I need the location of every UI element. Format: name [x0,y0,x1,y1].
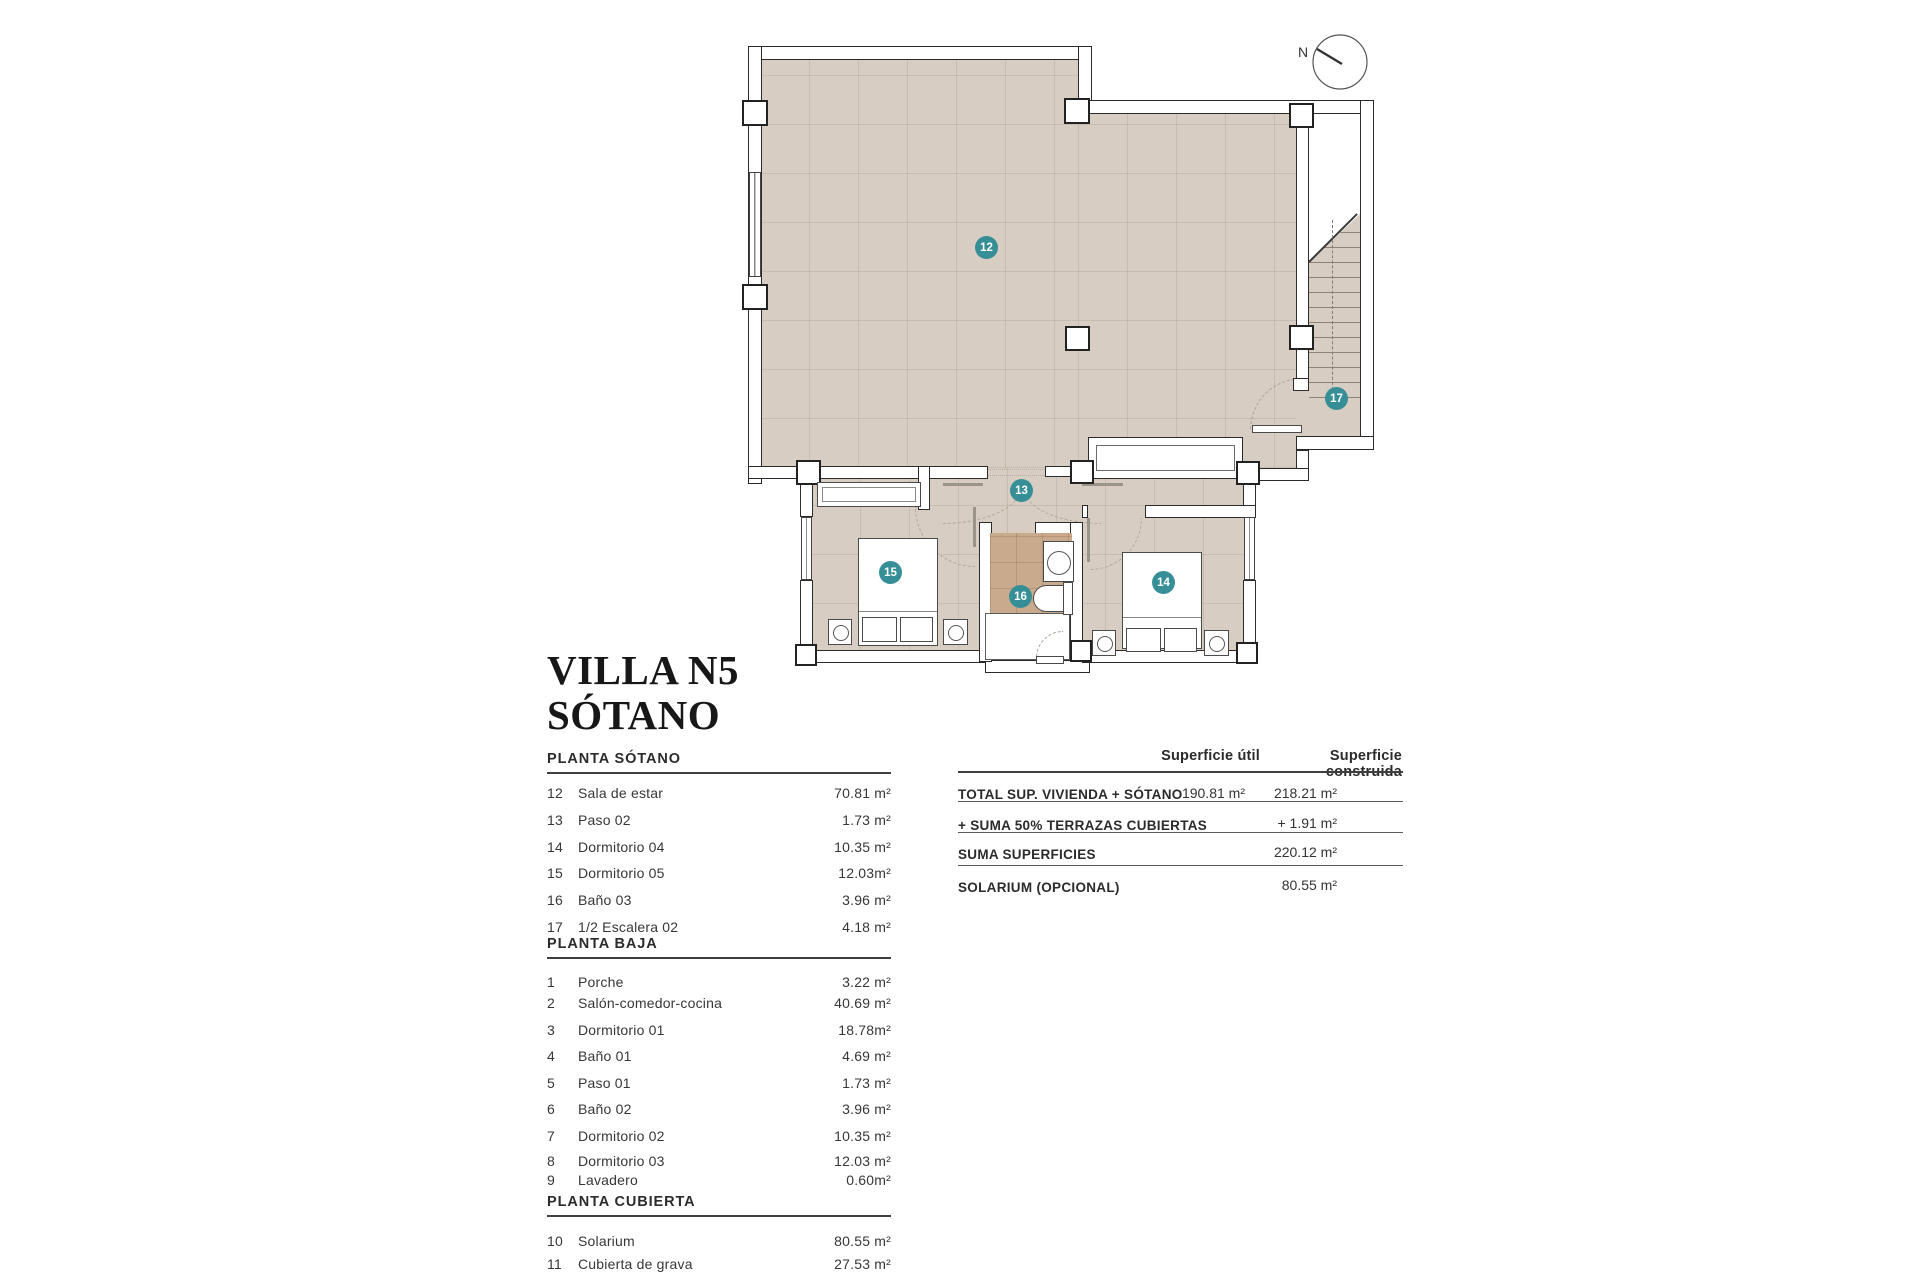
row-area: 18.78m² [838,1022,891,1038]
row-area: 1.73 m² [842,812,891,828]
stair-tread [1309,352,1360,353]
summary-rule [958,832,1403,833]
row-number: 4 [547,1048,578,1064]
row-number: 10 [547,1233,578,1249]
section-header: PLANTA SÓTANO [547,751,681,767]
title-line1: VILLA N5 [547,648,739,693]
row-number: 2 [547,995,578,1011]
lamp [1209,636,1225,652]
vestibule-wall-h [1253,468,1309,481]
lamp [833,625,849,641]
table-row: 11Cubierta de grava27.53 m² [547,1256,891,1272]
summary-rule [958,865,1403,866]
nightstand [828,619,852,645]
stair-void [1309,112,1360,216]
column [1070,640,1092,662]
table-row: 7Dormitorio 0210.35 m² [547,1128,891,1144]
column [1236,461,1260,485]
bed-sheet-line [1123,617,1201,618]
living-bottom-wall-a [748,466,988,479]
row-number: 9 [547,1172,578,1188]
column [1070,460,1094,484]
summary-row-label: + SUMA 50% TERRAZAS CUBIERTAS [958,818,1207,833]
table-row: 10Solarium80.55 m² [547,1233,891,1249]
table-row: 2Salón-comedor-cocina40.69 m² [547,995,891,1011]
pillow [862,617,897,642]
room-badge: 13 [1010,479,1033,502]
table-row: 8Dormitorio 0312.03 m² [547,1153,891,1169]
row-number: 5 [547,1075,578,1091]
table-row: 15Dormitorio 0512.03m² [547,865,891,881]
row-name: Dormitorio 01 [578,1022,665,1038]
row-name: Baño 03 [578,892,632,908]
table-row: 14Dormitorio 0410.35 m² [547,839,891,855]
column [1289,325,1314,350]
room-badge: 15 [879,561,902,584]
wardrobe-inner [822,487,916,502]
floorplan-page: { "title": {"line1": "VILLA N5", "line2"… [0,0,1920,1280]
row-number: 15 [547,865,578,881]
table-row: 9Lavadero0.60m² [547,1172,891,1188]
column [1236,642,1258,664]
summary-row-cons: 220.12 m² [1187,844,1337,860]
stair-tread [1309,307,1360,308]
row-name: Baño 02 [578,1101,632,1117]
summary-row-cons: 80.55 m² [1187,877,1337,893]
wardrobe [817,482,921,507]
bedroom14-top-stub [1082,505,1088,518]
row-area: 10.35 m² [834,839,891,855]
stair-tread [1309,367,1360,368]
row-name: Dormitorio 05 [578,865,665,881]
window-bedroom14 [1244,517,1255,580]
section-header: PLANTA BAJA [547,936,658,952]
row-name: 1/2 Escalera 02 [578,919,678,935]
column [1064,98,1090,124]
stair-tread [1309,262,1360,263]
summary-row-label: SOLARIUM (OPCIONAL) [958,880,1120,895]
outer-wall-right [1360,100,1374,450]
row-name: Baño 01 [578,1048,632,1064]
row-area: 3.96 m² [842,892,891,908]
summary-rule [958,771,1403,773]
row-number: 13 [547,812,578,828]
row-name: Salón-comedor-cocina [578,995,722,1011]
row-name: Sala de estar [578,785,663,801]
row-name: Paso 01 [578,1075,631,1091]
north-compass: N [1290,25,1380,105]
door-leaf [1252,425,1302,433]
pillow [1126,628,1161,652]
stair-tread [1309,337,1360,338]
lamp [1097,636,1113,652]
door-opening-dots [988,469,1045,470]
row-area: 3.96 m² [842,1101,891,1117]
window-bedroom15 [801,517,812,580]
stair-tread [1309,322,1360,323]
column [742,284,768,310]
nightstand [1204,630,1229,656]
row-name: Porche [578,974,624,990]
row-area: 12.03 m² [834,1153,891,1169]
row-name: Dormitorio 02 [578,1128,665,1144]
section-rule [547,772,891,774]
compass-needle [1317,49,1342,64]
room-badge: 17 [1325,387,1348,410]
pillow [900,617,933,642]
toilet-cistern [1063,582,1073,615]
title-line2: SÓTANO [547,693,739,738]
row-area: 3.22 m² [842,974,891,990]
room-badge: 12 [975,236,998,259]
column [795,644,817,666]
row-name: Paso 02 [578,812,631,828]
row-number: 8 [547,1153,578,1169]
column [1065,326,1090,351]
stair-tread [1309,292,1360,293]
row-number: 3 [547,1022,578,1038]
row-number: 7 [547,1128,578,1144]
column [742,100,768,126]
row-area: 12.03m² [838,865,891,881]
stair-tread [1309,382,1360,383]
row-number: 17 [547,919,578,935]
row-area: 1.73 m² [842,1075,891,1091]
stair-walk-line [1332,220,1333,405]
row-area: 40.69 m² [834,995,891,1011]
table-row: 4Baño 014.69 m² [547,1048,891,1064]
row-area: 80.55 m² [834,1233,891,1249]
row-area: 70.81 m² [834,785,891,801]
row-number: 14 [547,839,578,855]
section-header: PLANTA CUBIERTA [547,1194,696,1210]
bedroom14-top-wall [1145,505,1256,518]
sink [1043,541,1074,582]
table-row: 5Paso 011.73 m² [547,1075,891,1091]
stair-bottom-wall [1296,436,1374,450]
room-badge: 16 [1009,585,1032,608]
beam-pocket-inner [1096,445,1235,471]
table-row: 13Paso 021.73 m² [547,812,891,828]
table-row: 12Sala de estar70.81 m² [547,785,891,801]
row-area: 10.35 m² [834,1128,891,1144]
pillow [1164,628,1197,652]
row-area: 27.53 m² [834,1256,891,1272]
row-area: 4.69 m² [842,1048,891,1064]
floor-living-left [760,58,1078,468]
bed-sheet-line [859,611,937,612]
summary-row-cons: + 1.91 m² [1187,815,1337,831]
table-row: 1Porche3.22 m² [547,974,891,990]
lamp [948,625,964,641]
table-row: 6Baño 023.96 m² [547,1101,891,1117]
row-area: 4.18 m² [842,919,891,935]
section-rule [547,1215,891,1217]
row-number: 12 [547,785,578,801]
page-title: VILLA N5 SÓTANO [547,648,739,738]
summary-col-header-util: Superficie útil [1100,748,1260,764]
column [1289,103,1314,128]
nightstand [1092,630,1116,656]
row-name: Solarium [578,1233,635,1249]
outer-wall-top-left [748,46,1092,60]
room-badge: 14 [1152,571,1175,594]
table-row: 16Baño 033.96 m² [547,892,891,908]
compass-label: N [1298,44,1308,60]
row-name: Cubierta de grava [578,1256,693,1272]
summary-row-cons: 218.21 m² [1187,785,1337,801]
summary-rule [958,801,1403,802]
stair-wall-endcap [1293,378,1309,391]
row-name: Lavadero [578,1172,638,1188]
row-number: 16 [547,892,578,908]
row-name: Dormitorio 03 [578,1153,665,1169]
section-rule [547,957,891,959]
summary-row-label: SUMA SUPERFICIES [958,847,1096,862]
nightstand [943,619,968,645]
table-row: 3Dormitorio 0118.78m² [547,1022,891,1038]
row-area: 0.60m² [846,1172,891,1188]
sink-basin [1047,551,1071,575]
bottom-wall-bedroom15 [800,650,985,663]
row-name: Dormitorio 04 [578,839,665,855]
door-opening-dots [988,475,1045,476]
shower-door [1036,656,1064,664]
stair-tread [1309,277,1360,278]
table-row: 171/2 Escalera 024.18 m² [547,919,891,935]
summary-col-header-cons: Superficie construida [1262,748,1402,780]
row-number: 1 [547,974,578,990]
window-living-left [749,172,761,277]
row-number: 6 [547,1101,578,1117]
row-number: 11 [547,1256,578,1272]
